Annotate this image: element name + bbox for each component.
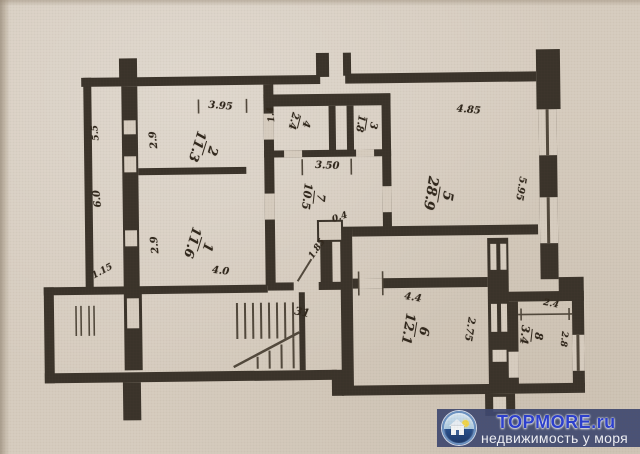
staircase <box>233 292 306 371</box>
watermark-texts: TOPMORE.ru недвижимость у моря <box>479 410 639 446</box>
topmore-logo-icon <box>442 411 476 445</box>
vent-duct <box>318 221 342 241</box>
entrance-door-leaf <box>297 259 311 281</box>
floorplan-scan: 211.3111.6528.9612.183.442.431.8710.53.9… <box>0 0 640 454</box>
watermark: TOPMORE.ru недвижимость у моря <box>437 409 640 447</box>
house-door-icon <box>456 430 459 435</box>
scan-edge-top <box>0 0 640 6</box>
floorplan-drawing <box>0 0 640 454</box>
scan-edge-left <box>0 0 10 454</box>
house-roof-icon <box>449 419 465 426</box>
walls <box>41 49 585 422</box>
floorplan: 211.3111.6528.9612.183.442.431.8710.53.9… <box>0 0 640 454</box>
watermark-tagline: недвижимость у моря <box>481 430 628 446</box>
